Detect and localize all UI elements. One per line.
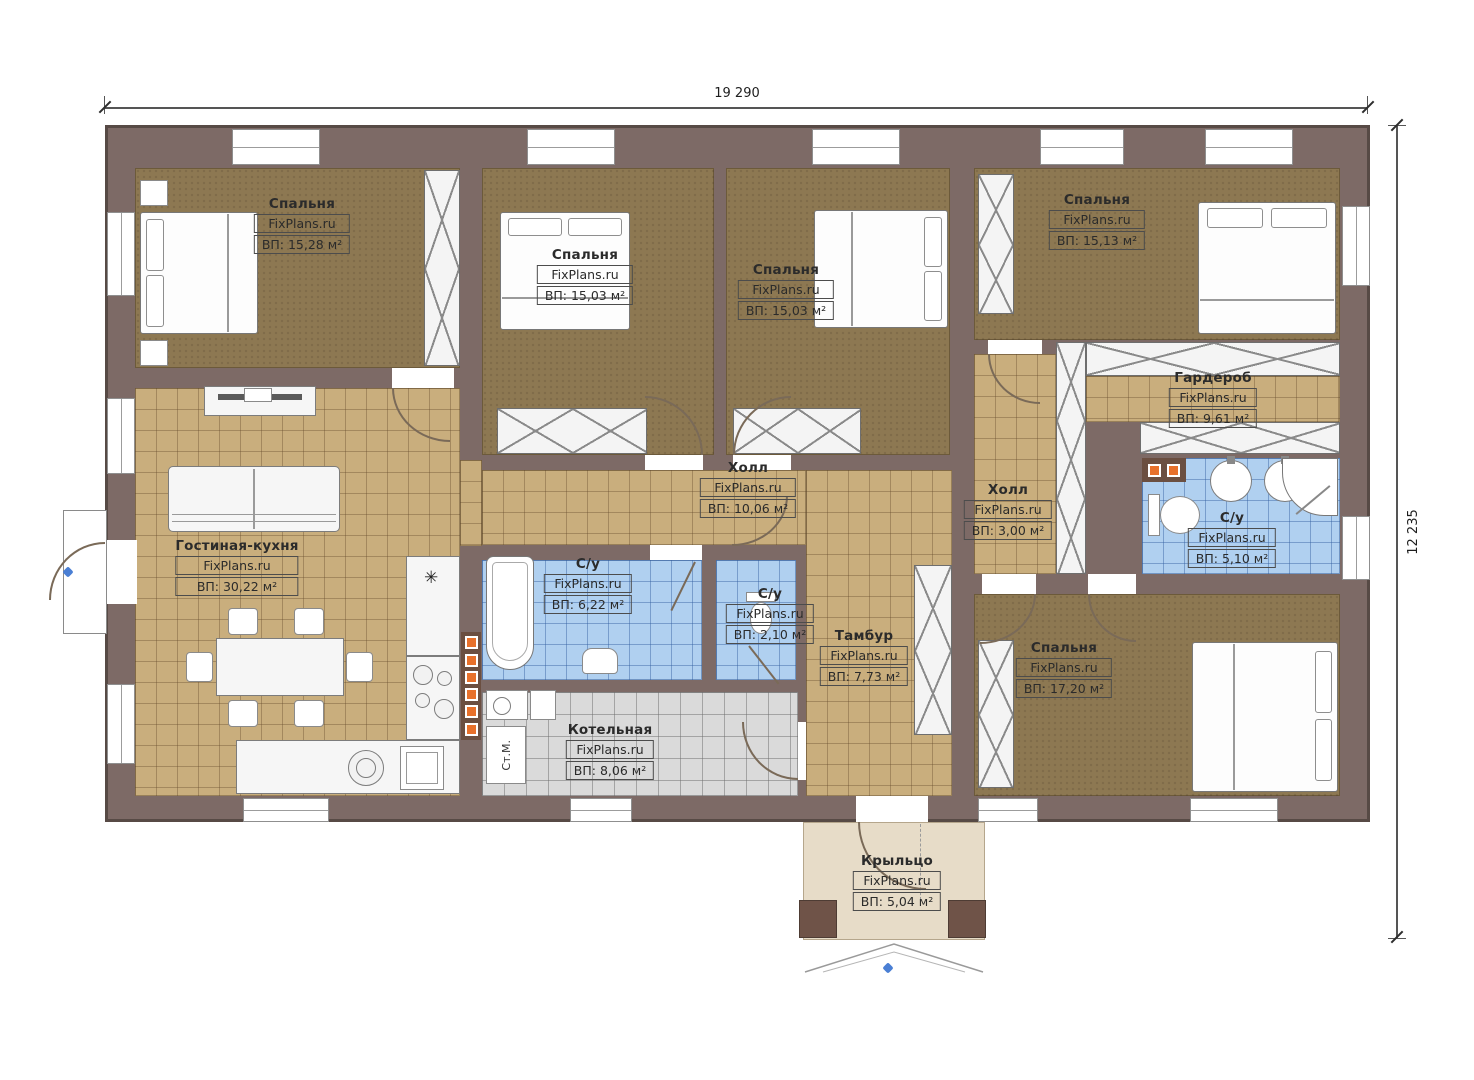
tap xyxy=(1227,456,1235,464)
door-opening-bathroom-2 xyxy=(650,545,702,560)
window xyxy=(107,398,135,474)
room-label-bathroom-3: С/у FixPlans.ru ВП: 2,10 м² xyxy=(726,586,814,644)
window xyxy=(232,129,320,165)
porch-post xyxy=(799,900,837,938)
room-label-bedroom-5: Спальня FixPlans.ru ВП: 17,20 м² xyxy=(1016,640,1112,698)
toilet-tank xyxy=(1148,494,1160,536)
boiler-unit-2 xyxy=(530,690,556,720)
chair xyxy=(186,652,213,682)
chair xyxy=(346,652,373,682)
window xyxy=(107,212,135,296)
stove xyxy=(406,656,460,740)
room-label-wardrobe: Гардероб FixPlans.ru ВП: 9,61 м² xyxy=(1169,370,1257,428)
room-label-bedroom-1: Спальня FixPlans.ru ВП: 15,28 м² xyxy=(254,196,350,254)
kitchen-sink-basin xyxy=(356,758,376,778)
door-opening-bathroom-1 xyxy=(1088,574,1136,594)
window xyxy=(107,684,135,764)
wardrobe-bedroom-2 xyxy=(497,408,647,454)
washing-machine: Ст.М. xyxy=(486,726,526,784)
chair xyxy=(294,608,324,635)
bed xyxy=(140,212,258,334)
bed xyxy=(1192,642,1338,792)
nightstand xyxy=(140,180,168,206)
room-label-bathroom-2: С/у FixPlans.ru ВП: 6,22 м² xyxy=(544,556,632,614)
wardrobe-bedroom-1 xyxy=(424,170,460,366)
porch-door-opening xyxy=(856,796,928,822)
top-dimension-label: 19 290 xyxy=(714,86,760,101)
wardrobe-bedroom-5 xyxy=(978,640,1014,788)
room-label-bedroom-4: Спальня FixPlans.ru ВП: 15,13 м² xyxy=(1049,192,1145,250)
entrance-door-arc xyxy=(49,542,105,600)
porch-post xyxy=(948,900,986,938)
room-label-boiler: Котельная FixPlans.ru ВП: 8,06 м² xyxy=(566,722,654,780)
floor-plan: 19 290 12 235 xyxy=(0,0,1474,1080)
bed xyxy=(1198,202,1336,334)
wardrobe-bedroom-4 xyxy=(978,174,1014,314)
window xyxy=(527,129,615,165)
vent-symbol: ✳ xyxy=(424,568,438,588)
door-opening-bedroom-1 xyxy=(392,368,454,388)
wardrobe-column xyxy=(1056,342,1086,574)
right-dimension-label: 12 235 xyxy=(1406,509,1421,555)
door-opening-bedroom-4 xyxy=(988,340,1042,354)
room-label-porch: Крыльцо FixPlans.ru ВП: 5,04 м² xyxy=(853,853,941,911)
heating-riser-strip xyxy=(461,632,481,740)
window xyxy=(978,798,1038,822)
sink xyxy=(1210,460,1252,502)
window xyxy=(243,798,329,822)
washing-machine-label: Ст.М. xyxy=(500,740,513,771)
window xyxy=(812,129,900,165)
chair xyxy=(228,608,258,635)
room-label-bedroom-2: Спальня FixPlans.ru ВП: 15,03 м² xyxy=(537,247,633,305)
toilet xyxy=(582,648,618,674)
tv-console xyxy=(244,388,272,402)
nightstand xyxy=(140,340,168,366)
boiler-unit xyxy=(486,690,528,720)
window xyxy=(1205,129,1293,165)
chair xyxy=(294,700,324,727)
room-label-bedroom-3: Спальня FixPlans.ru ВП: 15,03 м² xyxy=(738,262,834,320)
window xyxy=(1342,206,1370,286)
bathtub xyxy=(486,556,534,670)
door-opening-bedroom-5 xyxy=(982,574,1036,594)
right-dimension-line xyxy=(1396,126,1398,939)
dining-table xyxy=(216,638,344,696)
window xyxy=(1040,129,1124,165)
window xyxy=(1190,798,1278,822)
room-label-bathroom-1: С/у FixPlans.ru ВП: 5,10 м² xyxy=(1188,510,1276,568)
kitchen-appliance-inner xyxy=(406,752,438,784)
sofa xyxy=(168,466,340,532)
window xyxy=(1342,516,1370,580)
door-opening-boiler xyxy=(798,722,806,780)
room-label-hall-main: Холл FixPlans.ru ВП: 10,06 м² xyxy=(700,460,796,518)
wardrobe-tambour xyxy=(914,565,952,735)
door-opening-bedroom-2 xyxy=(645,455,703,470)
room-label-living-kitchen: Гостиная-кухня FixPlans.ru ВП: 30,22 м² xyxy=(175,538,298,596)
porch-steps xyxy=(803,940,985,974)
entrance-door-opening xyxy=(105,540,137,604)
chair xyxy=(228,700,258,727)
heating-riser-strip xyxy=(1142,458,1186,482)
window xyxy=(570,798,632,822)
room-label-tambour: Тамбур FixPlans.ru ВП: 7,73 м² xyxy=(820,628,908,686)
room-label-hall-2: Холл FixPlans.ru ВП: 3,00 м² xyxy=(964,482,1052,540)
hall-living-opening xyxy=(460,460,482,546)
top-dimension-line xyxy=(105,107,1368,109)
